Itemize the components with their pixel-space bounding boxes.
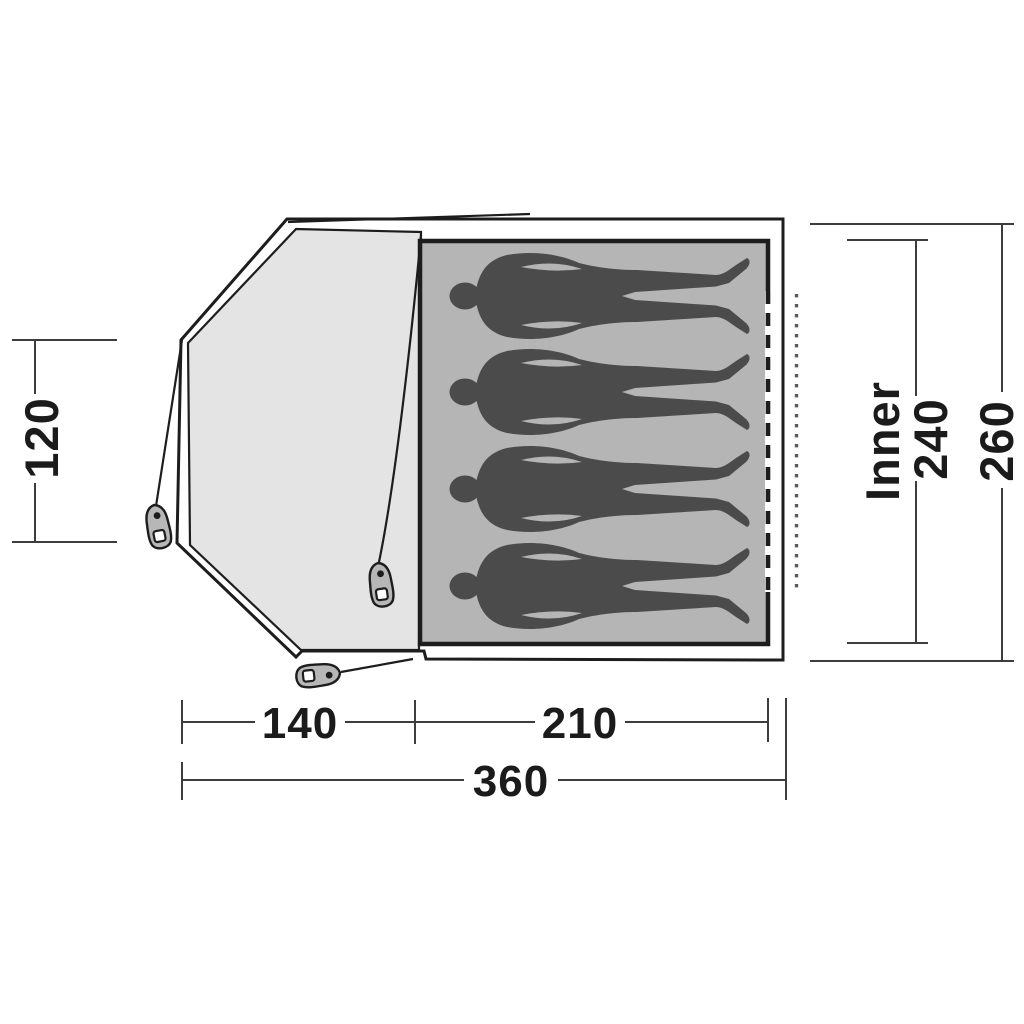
dimension-porch-depth: 120 [12, 340, 117, 542]
dim-text-porch-depth: 120 [15, 397, 68, 478]
dim-text-inner-width: 240 [904, 398, 957, 479]
tent-floorplan-page: 120 140 210 360 Inner 240 260 [0, 0, 1024, 1024]
dim-text-porch-length: 140 [262, 699, 338, 748]
dim-text-total-length: 360 [473, 757, 549, 806]
toggle-cord-front [341, 659, 413, 672]
dim-text-inner-length: 210 [542, 699, 618, 748]
dimension-porch-length: 140 210 [182, 698, 768, 748]
dimension-inner-width: Inner 240 [847, 240, 957, 643]
front-toggle-icon [295, 662, 341, 689]
tent-floorplan-diagram: 120 140 210 360 Inner 240 260 [0, 0, 1024, 1024]
dim-text-total-width: 260 [970, 400, 1023, 481]
inner-label: Inner [856, 381, 909, 501]
zipper-pull-left-icon [143, 503, 173, 550]
